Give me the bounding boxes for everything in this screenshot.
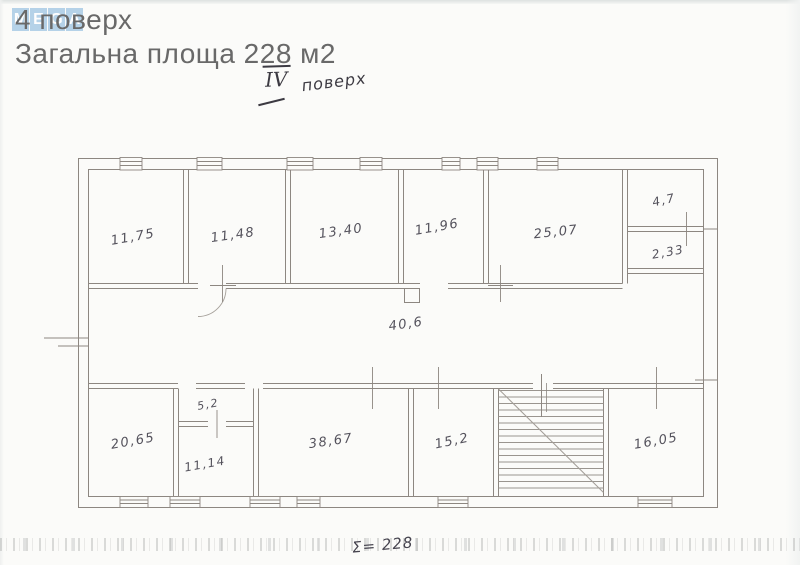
room-label-corridor: 40,6 (388, 315, 425, 335)
room-label-right-2: 2,33 (651, 242, 686, 261)
room-label-bottom-1: 20,65 (110, 430, 157, 453)
room-label-bottom-5: 15,2 (433, 431, 470, 453)
floor-plan: 11,75 11,48 13,40 11,96 25,07 4,7 2,33 4… (0, 0, 800, 565)
room-label-top-2: 11,48 (210, 225, 256, 246)
room-label-top-5: 25,07 (533, 223, 579, 243)
room-label-bottom-6: 16,05 (633, 430, 680, 453)
room-label-bottom-4: 38,67 (308, 431, 354, 452)
room-label-top-1: 11,75 (110, 226, 157, 249)
room-label-top-4: 11,96 (414, 216, 461, 239)
room-label-top-3: 13,40 (318, 221, 364, 242)
room-label-bottom-2: 5,2 (196, 396, 220, 413)
room-label-bottom-3: 11,14 (183, 453, 227, 474)
room-label-right-1: 4,7 (651, 191, 677, 210)
staircase (499, 374, 604, 493)
door-arc (198, 289, 226, 317)
dimension-ticks (44, 212, 718, 438)
